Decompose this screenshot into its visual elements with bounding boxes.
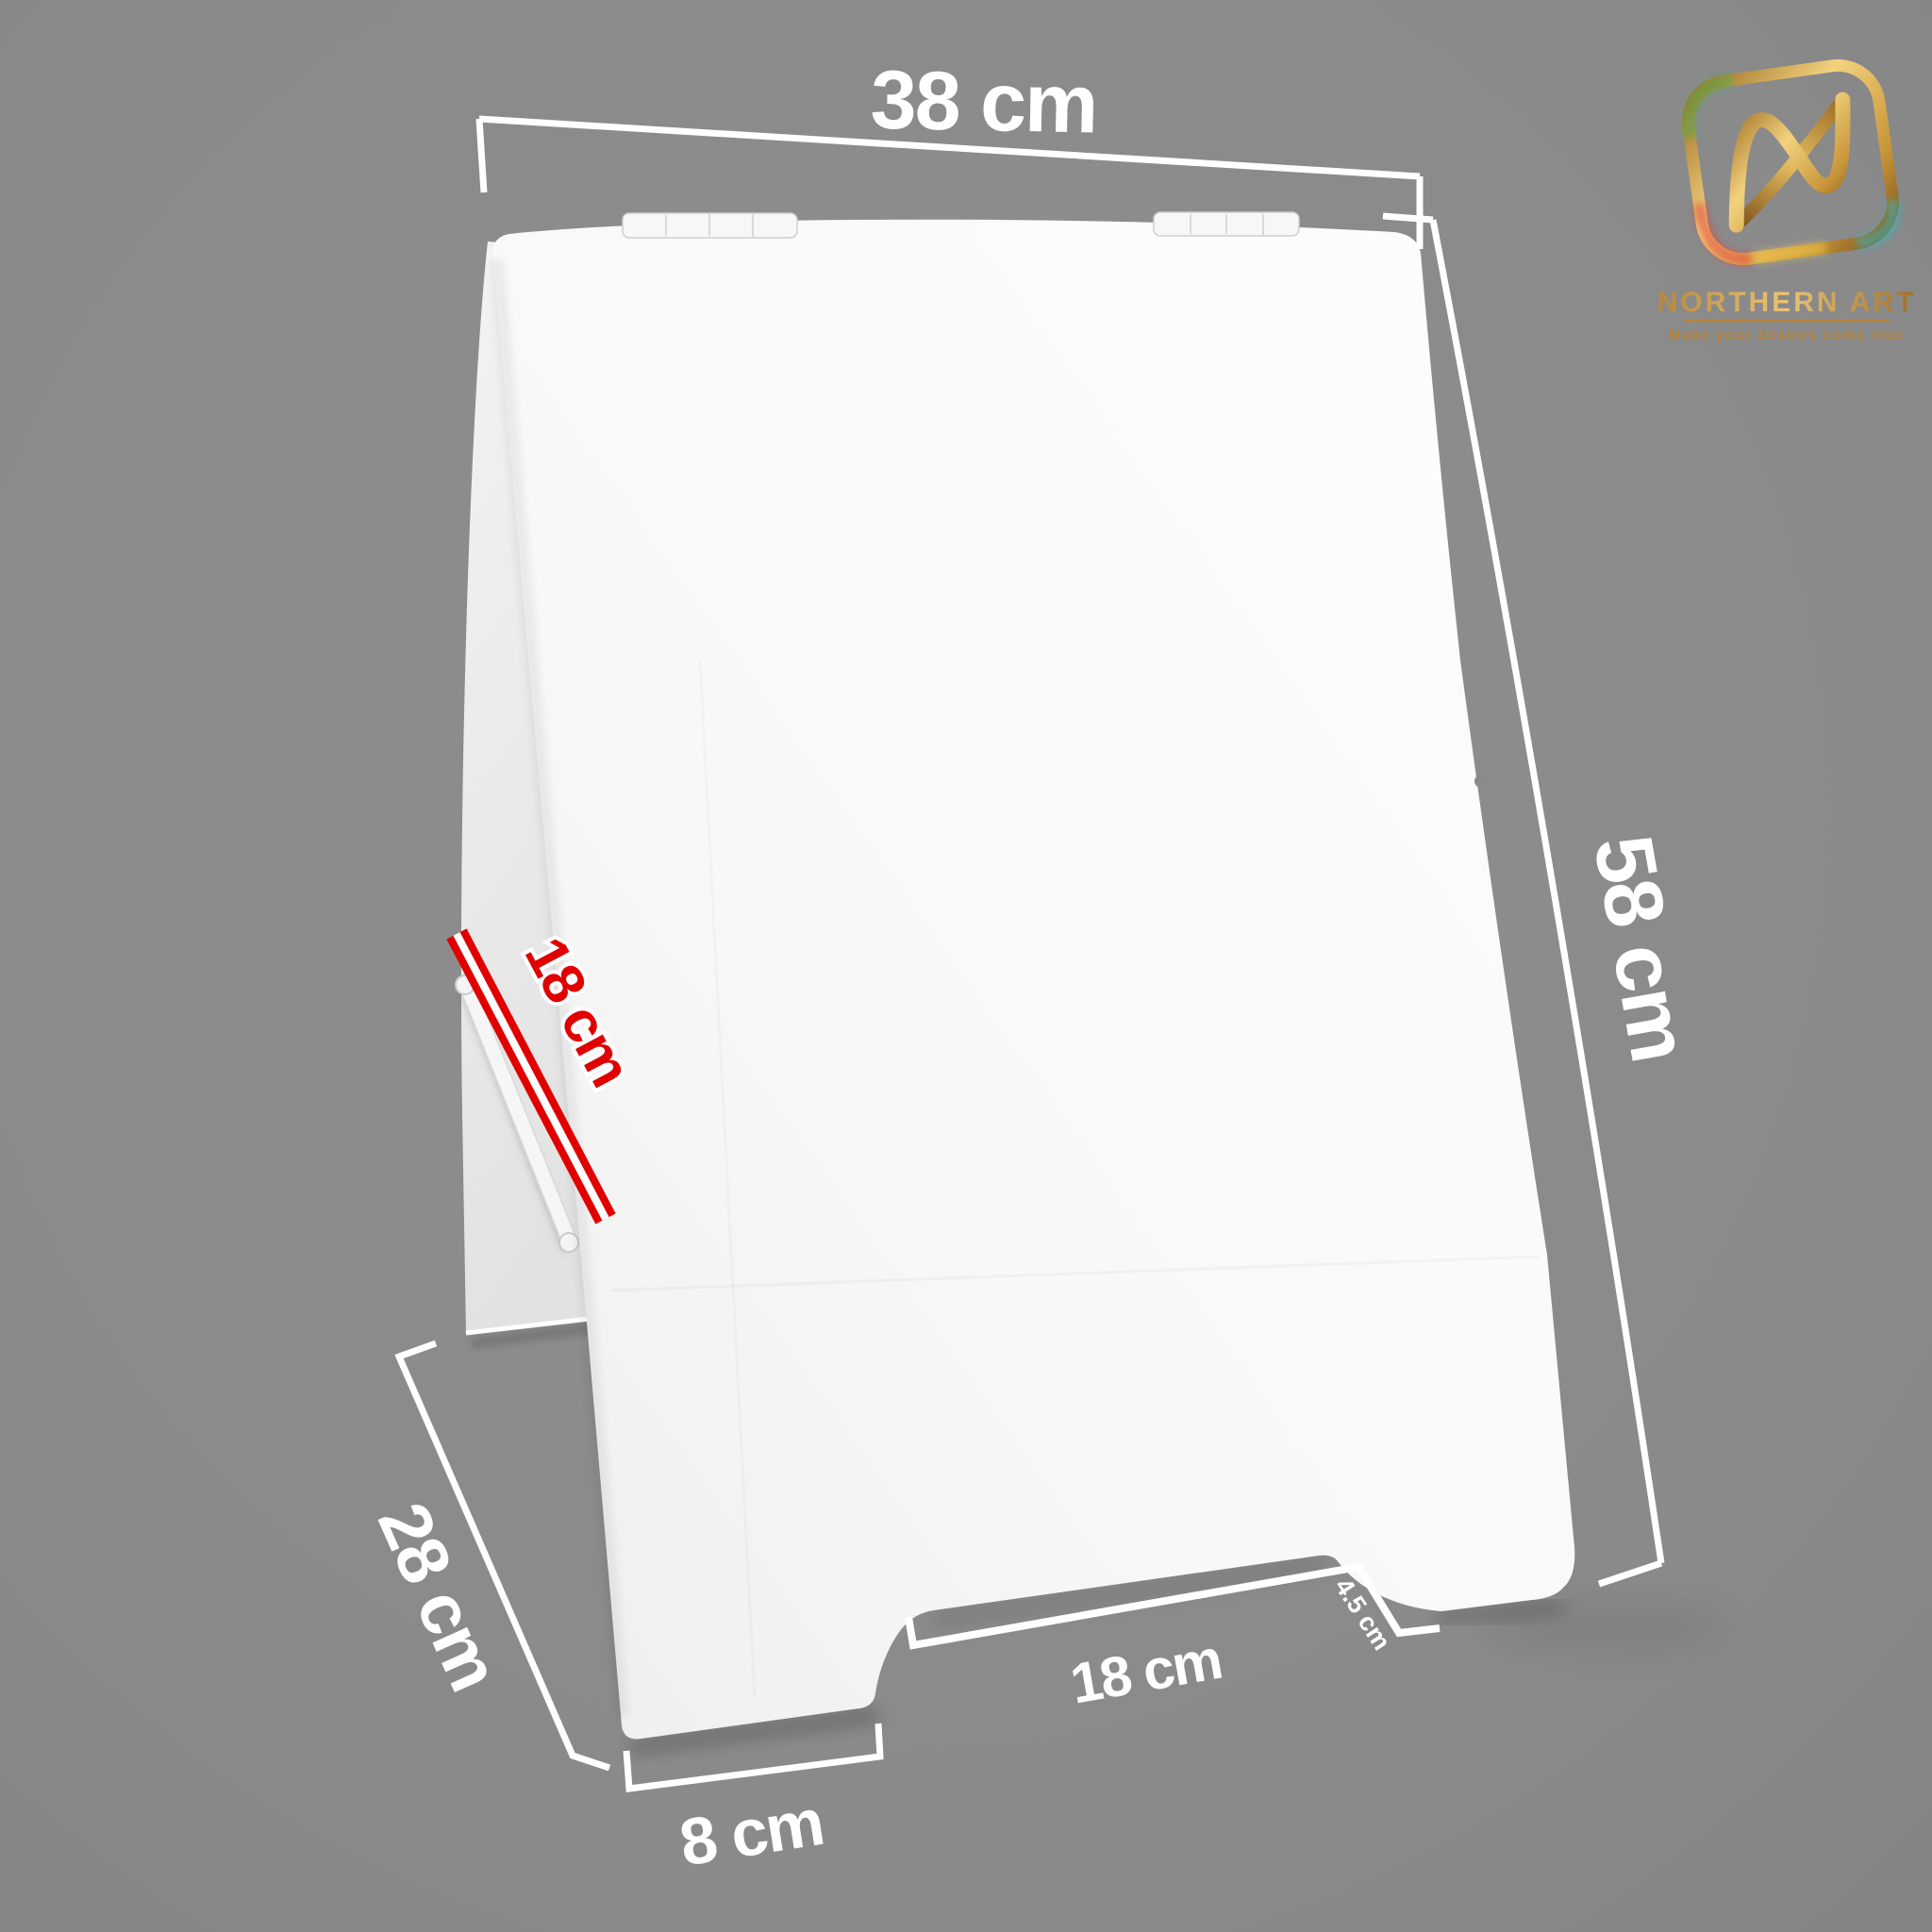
brand-tagline: Make your desires come true (1669, 327, 1905, 343)
product-dimension-diagram: 38 cm 58 cm 18 cm 28 cm 8 cm 18 cm 4.5 c… (0, 0, 1932, 1932)
hinge-right (1154, 212, 1299, 236)
sign-front-panel (492, 220, 1574, 1740)
dim-top-width-label: 38 cm (870, 53, 1098, 151)
brand-name: NORTHERN ART (1657, 287, 1917, 318)
diagram-canvas: 38 cm 58 cm 18 cm 28 cm 8 cm 18 cm 4.5 c… (0, 0, 1932, 1932)
right-edge-rivet-notch (1474, 774, 1488, 788)
hinge-left (623, 213, 797, 238)
